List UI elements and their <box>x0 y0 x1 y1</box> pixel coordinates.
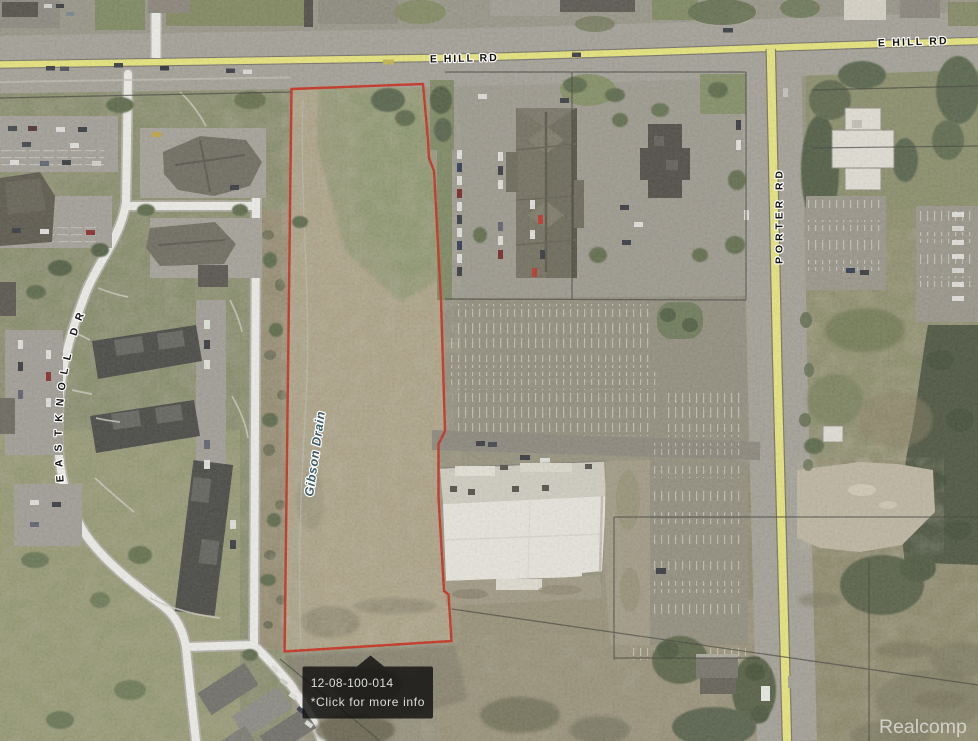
svg-text:*Click for more info: *Click for more info <box>311 695 425 709</box>
svg-text:E HILL RD: E HILL RD <box>878 35 948 49</box>
svg-text:E HILL RD: E HILL RD <box>430 52 498 66</box>
svg-text:PORTER RD: PORTER RD <box>774 169 786 264</box>
svg-text:Realcomp: Realcomp <box>879 716 967 738</box>
svg-text:12-08-100-014: 12-08-100-014 <box>311 676 394 690</box>
